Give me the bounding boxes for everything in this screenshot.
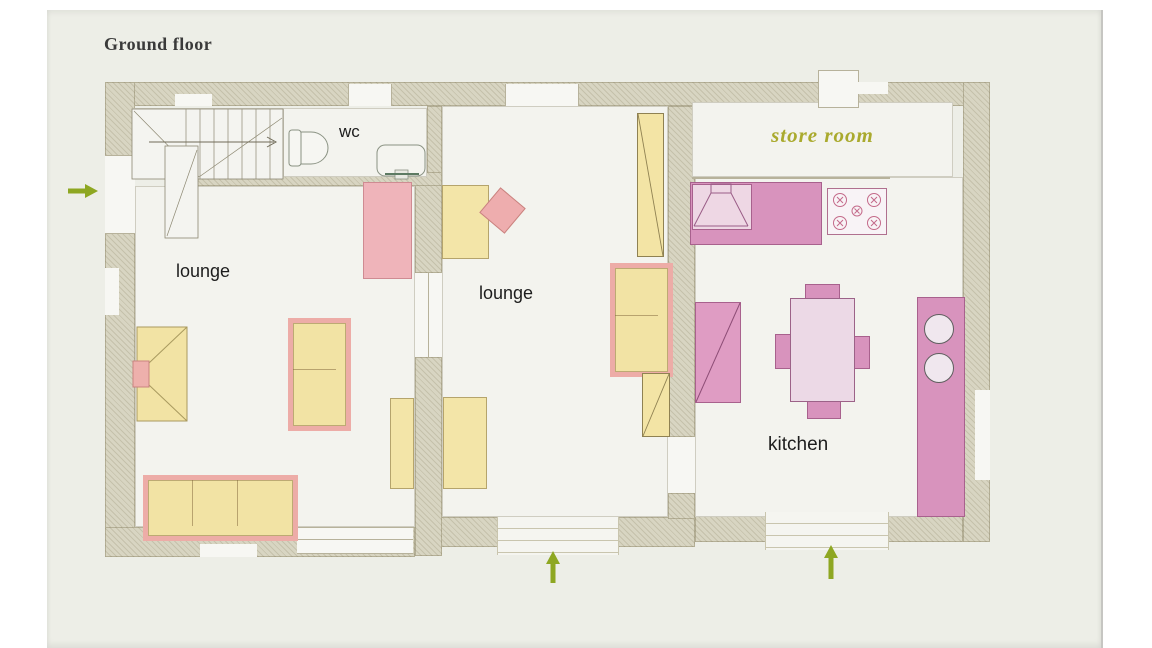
wash-basin [375,143,429,185]
window-top-1 [348,84,392,106]
sofa-two-seat-middle-lounge [610,263,673,377]
page-title: Ground floor [104,34,212,55]
chimney-breast [818,70,859,108]
window-bottom-left-lounge [297,527,413,554]
wall-between-lounges-lower [415,357,442,556]
wardrobe-small [642,373,670,437]
side-table-left-lounge [390,398,414,489]
room-label-lounge-middle: lounge [479,283,533,304]
room-label-store-room: store room [692,123,953,148]
toilet [287,123,335,171]
fireplace [133,325,191,423]
window-right-wall [975,390,990,480]
sink-bowl-1 [924,314,954,344]
top-wall-notch-1 [175,94,212,106]
top-wall-notch-2 [858,82,888,94]
door-leaf-line [428,273,429,357]
door-gap-lounge-kitchen [668,437,695,493]
dining-chair-right [853,336,870,369]
room-label-kitchen: kitchen [768,434,828,456]
wall-between-lounges-upper [415,177,442,273]
hob [827,188,887,235]
desk [442,185,489,259]
extractor-hood [692,184,750,228]
fridge [695,302,741,403]
page-fold-line [1101,10,1103,648]
entrance-steps-lounge [497,517,619,555]
entrance-arrow-icon [68,184,98,198]
window-top-2 [505,84,579,106]
wall-lounge-kitchen-stub [668,493,695,519]
store-room-partition [692,177,890,179]
sideboard [363,182,412,279]
wall-wc-right [427,106,442,177]
room-label-wc: wc [339,122,360,142]
sofa-three-seat [143,475,298,541]
dining-chair-bottom [807,399,841,419]
window-mullion-line [297,539,413,540]
sink-bowl-2 [924,353,954,383]
scanned-floor-plan-page: Ground floor [0,0,1152,648]
bottom-wall-notch [200,544,257,557]
dining-table [790,298,855,402]
entrance-arrow-icon [824,545,838,579]
sofa-two-seat-left-lounge [288,318,351,431]
entrance-arrow-icon [546,551,560,583]
room-label-lounge-left: lounge [176,261,230,282]
window-left-wall [105,268,119,315]
wardrobe-tall [637,113,664,257]
table-middle-lounge [443,397,487,489]
staircase [131,108,286,240]
